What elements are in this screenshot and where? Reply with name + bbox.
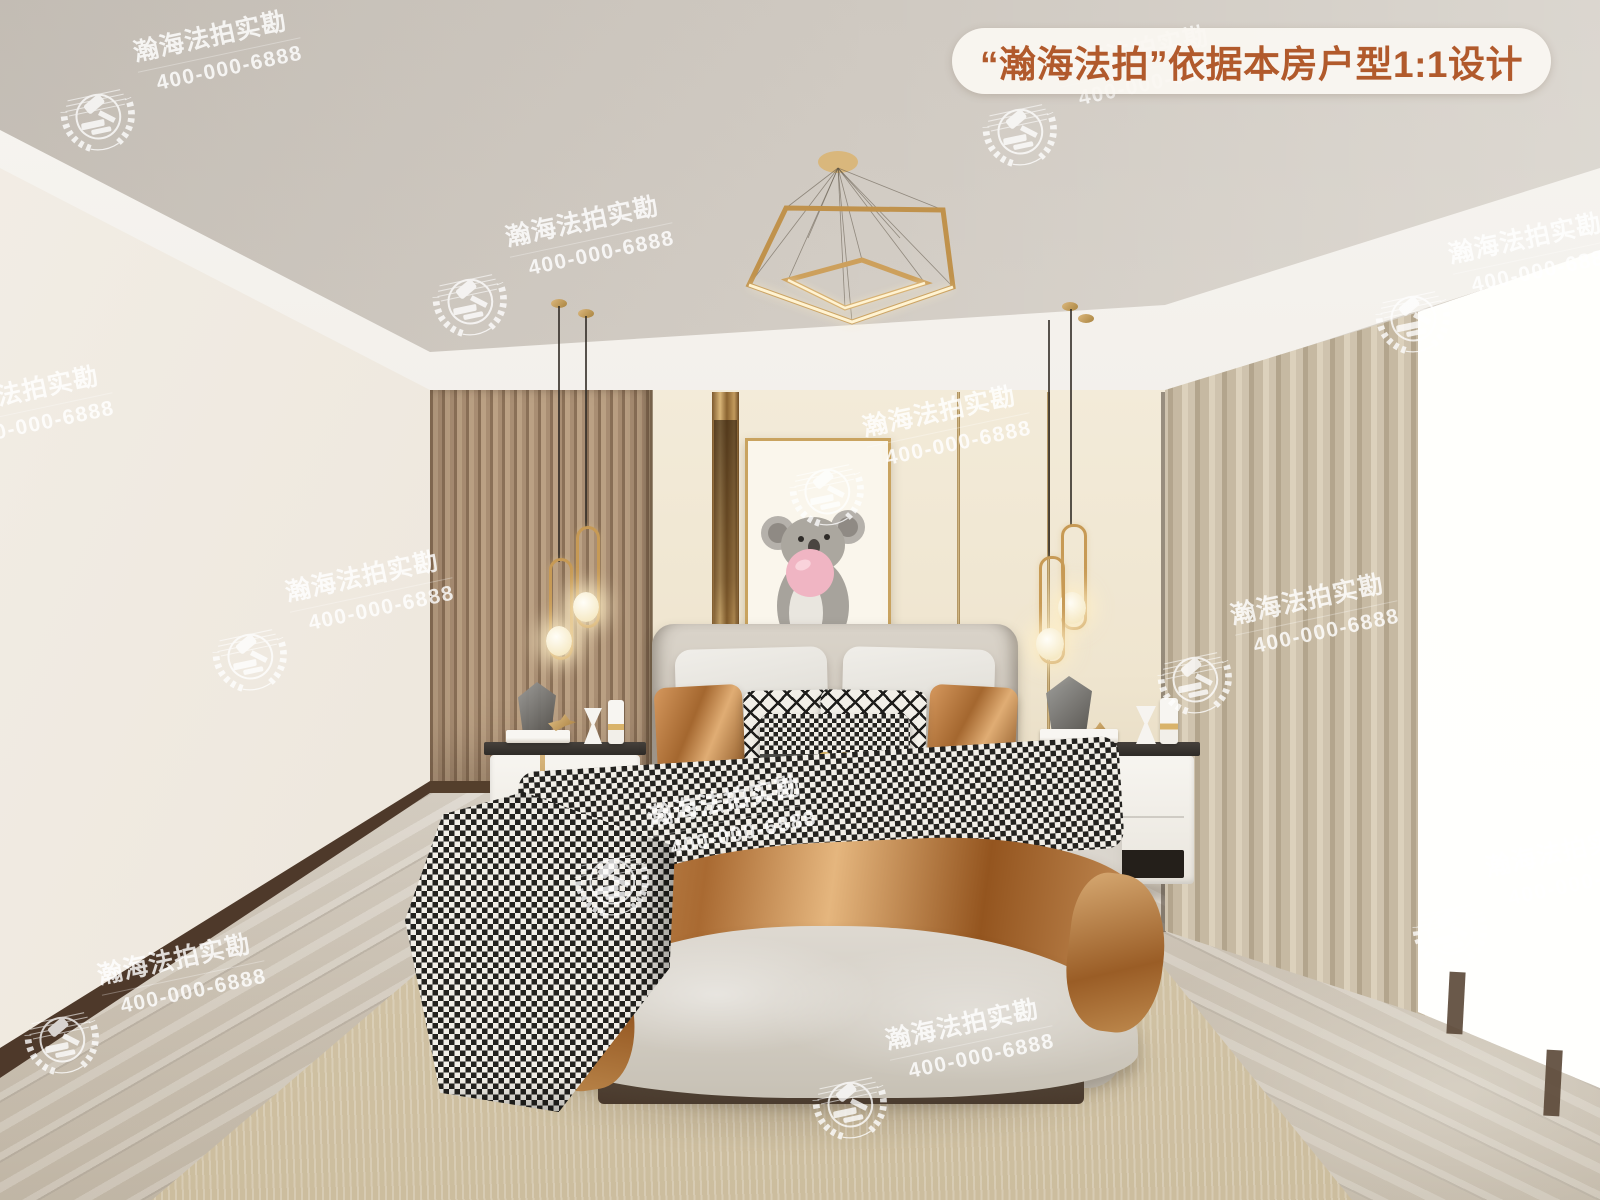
watermark-phone-text: 400-000-6888 xyxy=(867,413,1035,474)
watermark-texts: 瀚海法拍实勘 400-000-6888 xyxy=(1227,562,1403,662)
watermark: 瀚海法拍实勘 400-000-6888 xyxy=(562,794,830,929)
watermark: 瀚海法拍实勘 400-000-6888 xyxy=(1363,231,1600,366)
watermark-phone-text: 400-000-6888 xyxy=(1453,240,1600,301)
watermark-brand-text: 瀚海法拍实勘 xyxy=(1482,814,1600,888)
watermark-phone-text: 400-000-6888 xyxy=(652,803,820,864)
watermark: 瀚海法拍实勘 400-000-6888 xyxy=(0,384,128,519)
watermark-phone-text: 400-000-6888 xyxy=(510,223,678,284)
watermark-phone-text: 400-000-6888 xyxy=(890,1026,1058,1087)
watermark-texts: 瀚海法拍实勘 400-000-6888 xyxy=(882,987,1058,1087)
watermark: 瀚海法拍实勘 400-000-6888 xyxy=(1145,592,1413,727)
watermark-brand-text: 瀚海法拍实勘 xyxy=(1227,562,1398,636)
watermark: 瀚海法拍实勘 400-000-6888 xyxy=(420,214,688,349)
watermark-texts: 瀚海法拍实勘 400-000-6888 xyxy=(502,184,678,284)
watermark-brand-text: 瀚海法拍实勘 xyxy=(859,374,1030,448)
watermark-phone-text: 400-000-6888 xyxy=(102,961,270,1022)
watermark-phone-text: 400-000-6888 xyxy=(290,578,458,639)
watermark-brand-text: 瀚海法拍实勘 xyxy=(502,184,673,258)
bedroom-photo: 瀚海法拍实勘 400-000-6888 瀚海法拍实勘 400-000-6888 xyxy=(0,0,1600,1200)
watermark-brand-text: 瀚海法拍实勘 xyxy=(882,987,1053,1061)
badge-text: “瀚海法拍”依据本房户型1:1设计 xyxy=(980,34,1523,88)
gavel-in-laurel-wreath-icon xyxy=(562,830,662,930)
watermark: 瀚海法拍实勘 400-000-6888 xyxy=(1400,844,1600,979)
watermark: 瀚海法拍实勘 400-000-6888 xyxy=(800,1017,1068,1152)
watermark-texts: 瀚海法拍实勘 400-000-6888 xyxy=(130,0,306,99)
watermark-texts: 瀚海法拍实勘 400-000-6888 xyxy=(1445,201,1600,301)
gavel-in-laurel-wreath-icon xyxy=(970,80,1070,180)
watermark-brand-text: 瀚海法拍实勘 xyxy=(644,764,815,838)
watermark-texts: 瀚海法拍实勘 400-000-6888 xyxy=(859,374,1035,474)
gavel-in-laurel-wreath-icon xyxy=(48,65,148,165)
watermark-brand-text: 瀚海法拍实勘 xyxy=(1445,201,1600,275)
watermark-phone-text: 400-000-6888 xyxy=(0,393,118,454)
gavel-in-laurel-wreath-icon xyxy=(1400,880,1500,980)
watermark-phone-text: 400-000-6888 xyxy=(138,38,306,99)
watermark-brand-text: 瀚海法拍实勘 xyxy=(94,922,265,996)
watermark-texts: 瀚海法拍实勘 400-000-6888 xyxy=(644,764,820,864)
gavel-in-laurel-wreath-icon xyxy=(1363,267,1463,367)
watermark-texts: 瀚海法拍实勘 400-000-6888 xyxy=(0,354,118,454)
watermark: 瀚海法拍实勘 400-000-6888 xyxy=(777,404,1045,539)
gavel-in-laurel-wreath-icon xyxy=(420,250,520,350)
watermark-texts: 瀚海法拍实勘 400-000-6888 xyxy=(1482,814,1600,914)
gavel-in-laurel-wreath-icon xyxy=(1145,628,1245,728)
gavel-in-laurel-wreath-icon xyxy=(12,988,112,1088)
watermark: 瀚海法拍实勘 400-000-6888 xyxy=(48,29,316,164)
gavel-in-laurel-wreath-icon xyxy=(777,440,877,540)
watermark-layer: 瀚海法拍实勘 400-000-6888 瀚海法拍实勘 400-000-6888 xyxy=(0,0,1600,1200)
watermark-texts: 瀚海法拍实勘 400-000-6888 xyxy=(94,922,270,1022)
agency-badge: “瀚海法拍”依据本房户型1:1设计 xyxy=(952,28,1551,94)
watermark-texts: 瀚海法拍实勘 400-000-6888 xyxy=(282,539,458,639)
watermark-brand-text: 瀚海法拍实勘 xyxy=(282,539,453,613)
gavel-in-laurel-wreath-icon xyxy=(200,605,300,705)
watermark-phone-text: 400-000-6888 xyxy=(1235,601,1403,662)
watermark-phone-text: 400-000-6888 xyxy=(1490,853,1600,914)
gavel-in-laurel-wreath-icon xyxy=(800,1053,900,1153)
watermark: 瀚海法拍实勘 400-000-6888 xyxy=(200,569,468,704)
watermark: 瀚海法拍实勘 400-000-6888 xyxy=(12,952,280,1087)
watermark-brand-text: 瀚海法拍实勘 xyxy=(130,0,301,72)
watermark-brand-text: 瀚海法拍实勘 xyxy=(0,354,112,428)
